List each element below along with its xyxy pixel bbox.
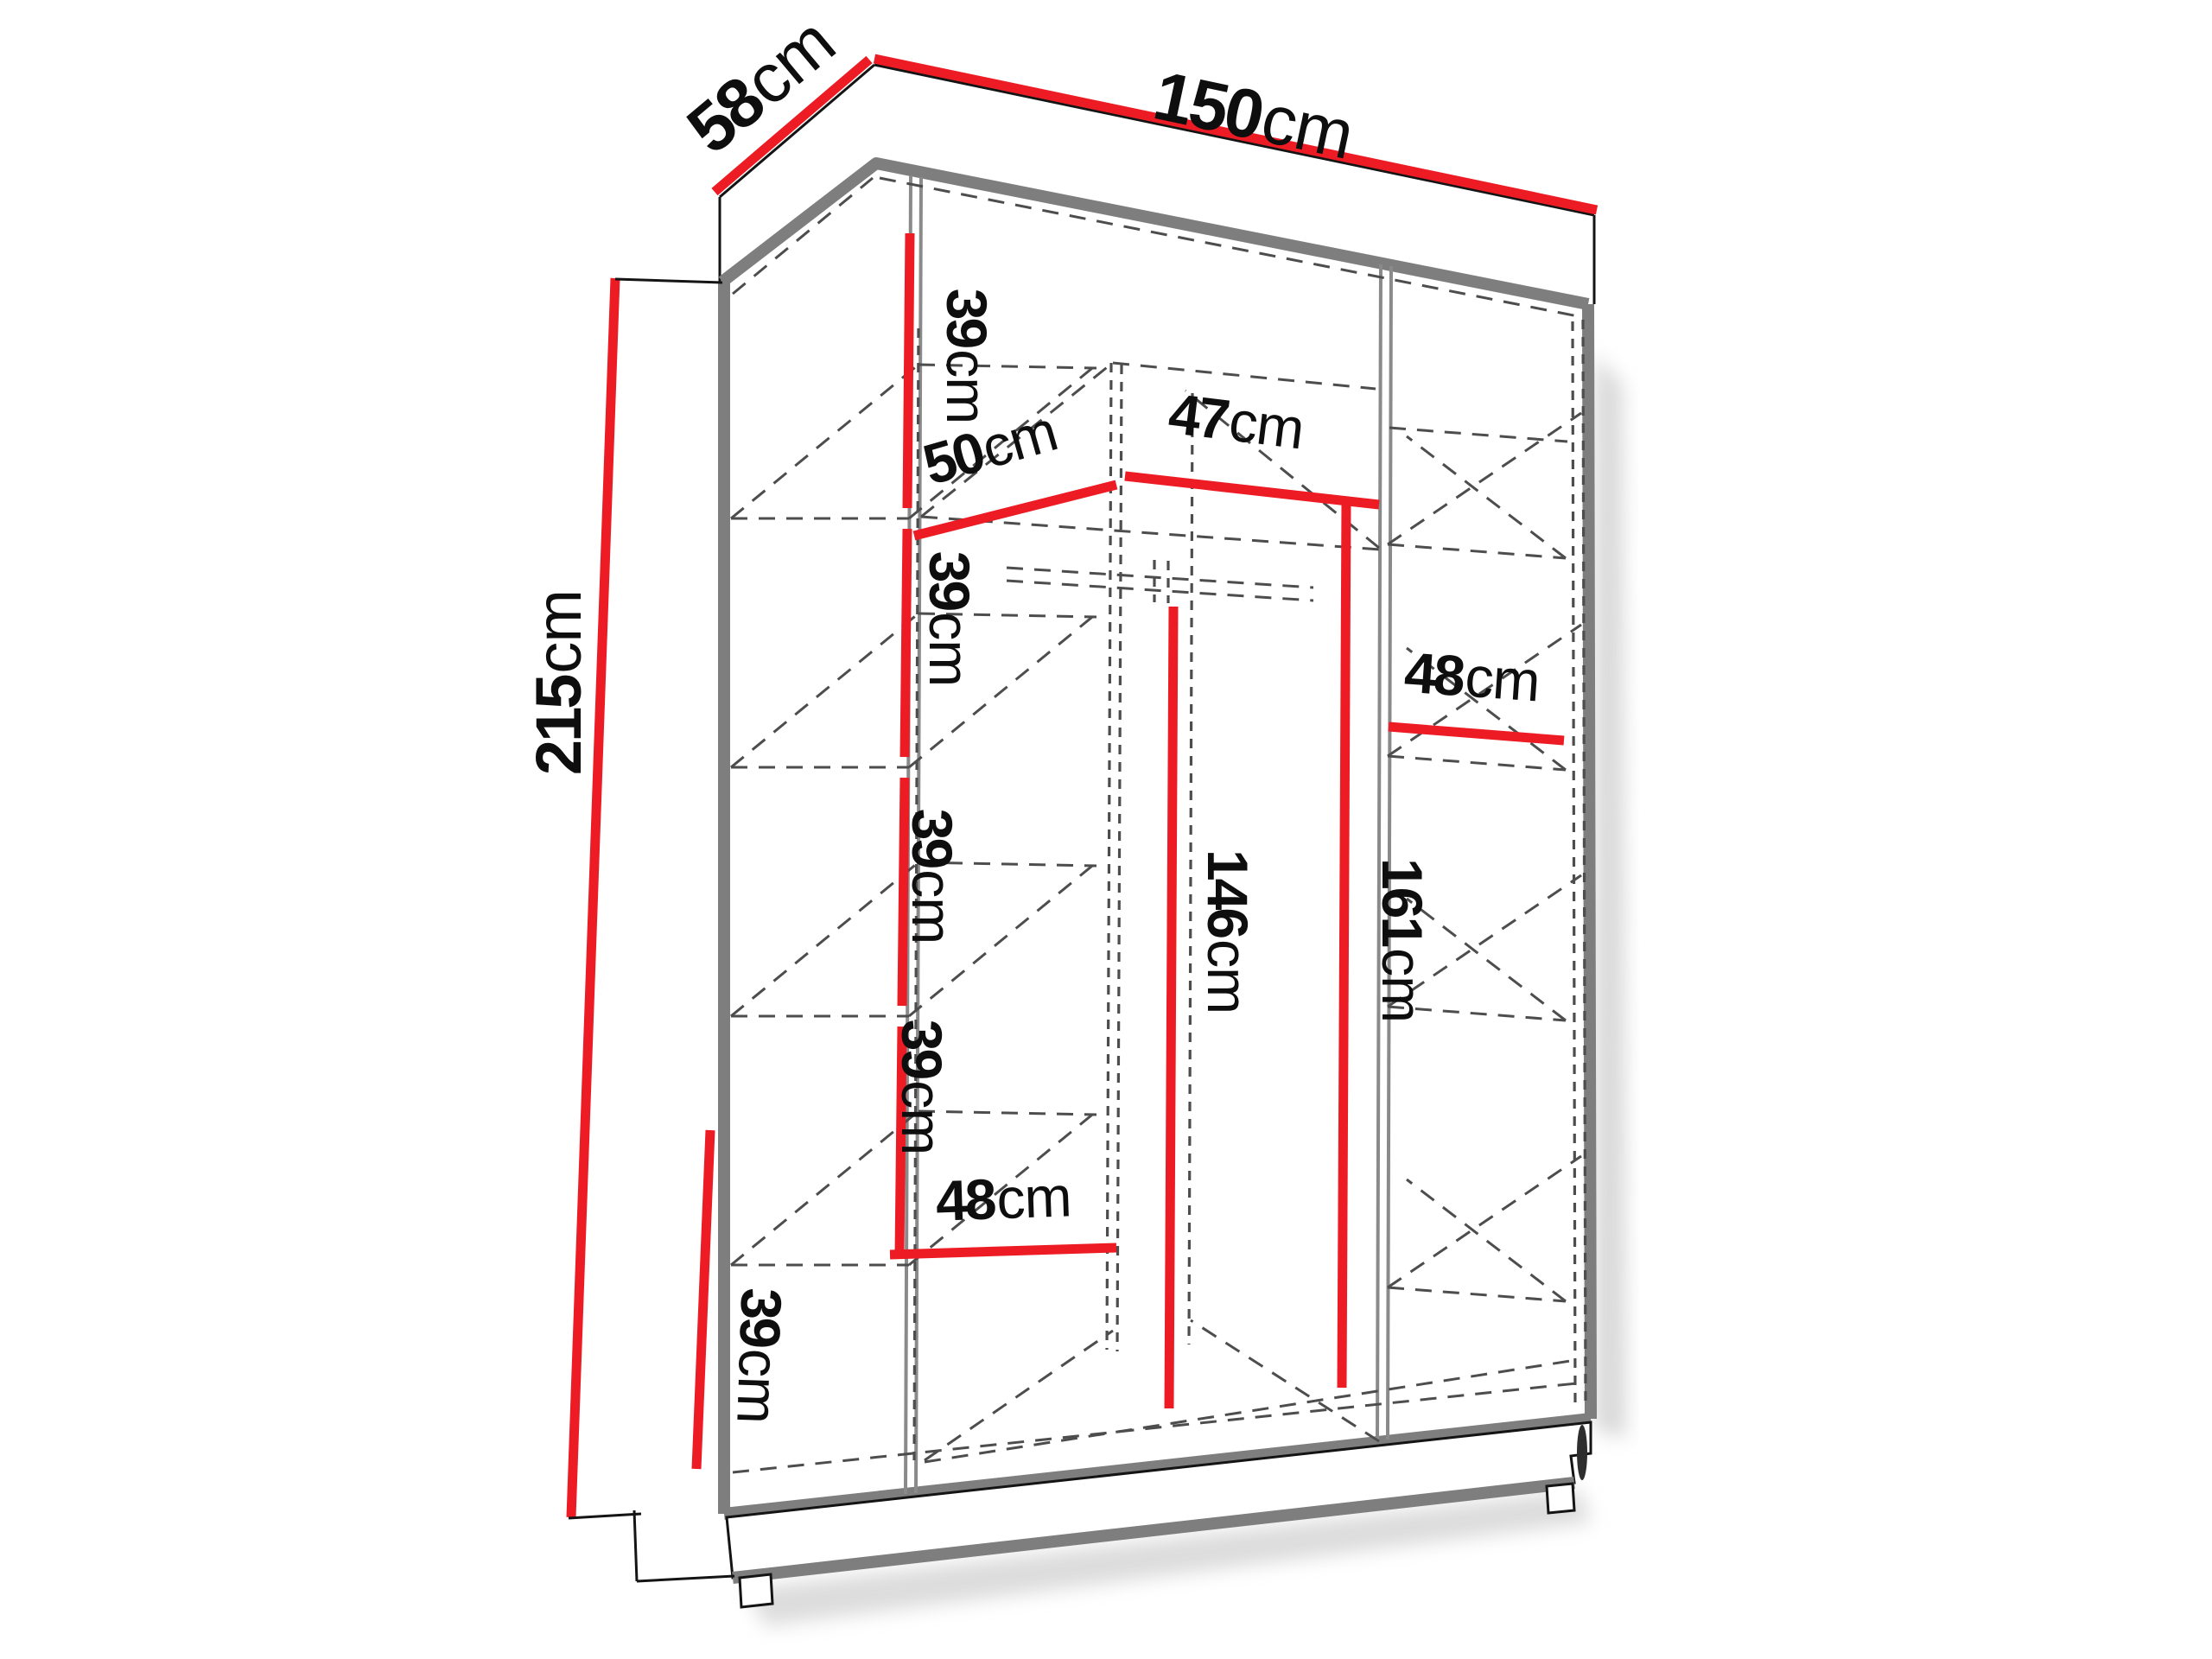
shelf-diagonal bbox=[731, 365, 918, 518]
dim-tick-top bbox=[615, 279, 722, 283]
hidden-edge bbox=[1573, 321, 1575, 1407]
shelf-edge bbox=[1388, 756, 1566, 770]
dim-line-gap39-1 bbox=[907, 233, 910, 508]
shelf-diagonal bbox=[731, 613, 918, 767]
shelf-edge bbox=[1388, 544, 1566, 558]
dim-line-146 bbox=[1169, 607, 1173, 1408]
label-161: 161cm bbox=[1370, 858, 1434, 1022]
label-gap39-1: 39cm bbox=[935, 289, 999, 423]
plinth-right-leg bbox=[1547, 1484, 1574, 1513]
shelf-back-edge bbox=[1113, 363, 1376, 389]
floor-diagonal bbox=[1191, 1320, 1379, 1441]
dim-line-47 bbox=[1125, 476, 1379, 505]
dim-line-gap39-2 bbox=[905, 529, 907, 757]
shelf-edge bbox=[1388, 1287, 1566, 1301]
hidden-edges bbox=[731, 178, 1586, 1472]
label-gap39-2: 39cm bbox=[918, 551, 982, 686]
shelf-diagonal bbox=[1388, 413, 1581, 544]
label-height-215: 215cm bbox=[523, 590, 594, 775]
shelf-diagonal bbox=[731, 862, 918, 1016]
shelf-edge bbox=[921, 517, 1381, 550]
hidden-edge bbox=[1107, 363, 1111, 1350]
label-48-left: 48cm bbox=[935, 1164, 1072, 1232]
dim-tick-bottom bbox=[569, 1514, 641, 1518]
dim-line-gap39-bottom bbox=[696, 1130, 710, 1469]
shelf-diagonal bbox=[1407, 436, 1566, 558]
right-divider-front2 bbox=[1388, 266, 1391, 1440]
plinth-left-leg bbox=[740, 1574, 772, 1607]
label-47: 47cm bbox=[1166, 381, 1307, 461]
side-panel-corner-edge bbox=[634, 1510, 637, 1581]
label-gap39-3: 39cm bbox=[900, 809, 964, 944]
floor-diagonal bbox=[925, 1331, 1113, 1460]
shelf-diagonal bbox=[1407, 1179, 1566, 1301]
right-divider-front bbox=[1377, 264, 1381, 1441]
dim-line-height-215 bbox=[571, 278, 615, 1517]
dim-line-161 bbox=[1342, 501, 1346, 1388]
carcass-right-edge bbox=[1588, 304, 1591, 1419]
label-48-right: 48cm bbox=[1402, 640, 1541, 714]
label-gap39-4: 39cm bbox=[890, 1020, 954, 1154]
wardrobe-dimension-diagram: 150cm 58cm 215cm 39cm 39cm 39cm 39cm 50c… bbox=[0, 0, 2212, 1659]
hanging-rail bbox=[1007, 568, 1313, 588]
dim-line-48-left bbox=[890, 1248, 1116, 1255]
label-146: 146cm bbox=[1196, 849, 1260, 1014]
shelf-back-edge bbox=[1389, 428, 1567, 442]
label-gap39-bottom: 39cm bbox=[725, 1287, 793, 1424]
side-panel-corner-base bbox=[637, 1576, 734, 1581]
hidden-edge bbox=[1117, 365, 1122, 1351]
shadow-right bbox=[1594, 354, 1626, 1439]
hidden-edge bbox=[1189, 393, 1192, 1344]
shelf-diagonal bbox=[1388, 1156, 1581, 1287]
plinth-right-leg-detail bbox=[1577, 1425, 1587, 1480]
